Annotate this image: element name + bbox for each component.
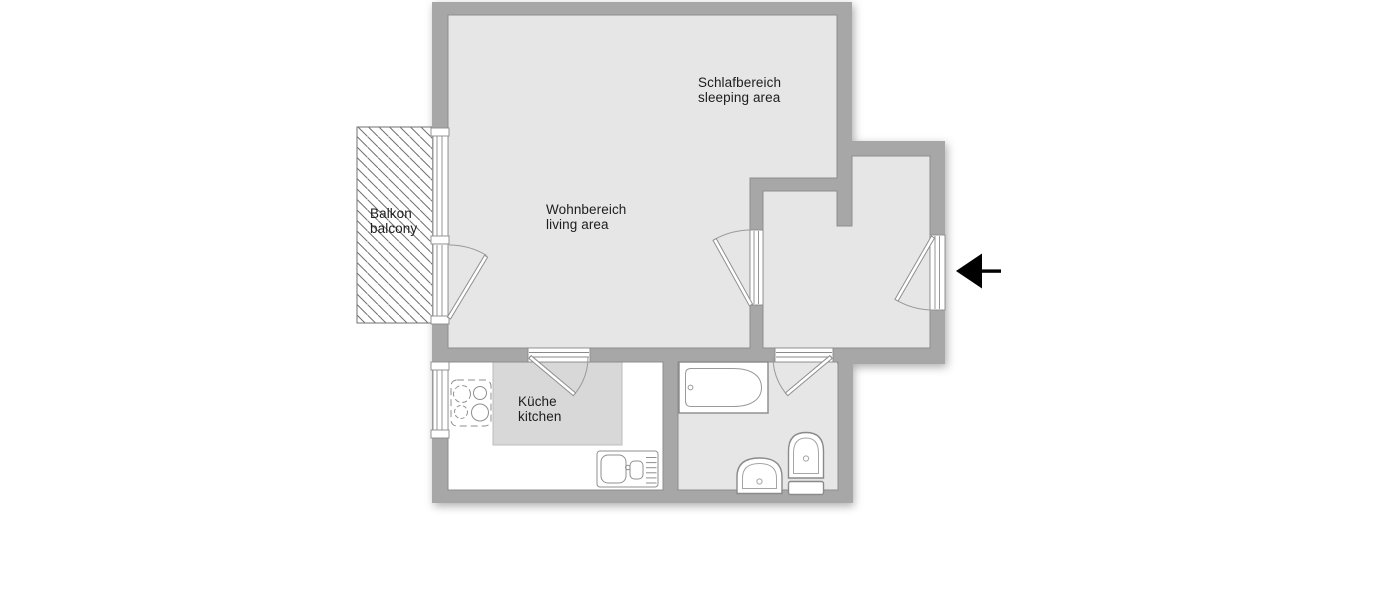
- sleeping-label-de: Schlafbereich: [698, 75, 781, 90]
- wall-mid-b: [590, 348, 775, 362]
- wall-hall-left-lower: [750, 305, 763, 362]
- washbasin-icon: [737, 458, 782, 494]
- label-balcony: Balkon balcony: [370, 206, 417, 236]
- label-living-area: Wohnbereich living area: [546, 202, 626, 232]
- label-kitchen: Küche kitchen: [518, 394, 561, 424]
- wall-hall-bottom: [837, 348, 945, 364]
- wall-hall-top: [837, 141, 945, 156]
- living-label-en: living area: [546, 217, 626, 232]
- kitchen-window: [431, 362, 449, 438]
- bathtub-icon: [679, 362, 768, 413]
- toilet-icon: [789, 433, 824, 495]
- balcony-label-en: balcony: [370, 221, 417, 236]
- balcony-window: [431, 128, 449, 244]
- floor-plan-canvas: Schlafbereich sleeping area Wohnbereich …: [0, 0, 1400, 600]
- wall-top: [432, 2, 852, 15]
- wall-stub: [750, 178, 852, 191]
- kitchen-door-opening: [528, 348, 590, 362]
- wall-bath-right: [838, 348, 853, 503]
- kitchen-label-en: kitchen: [518, 409, 561, 424]
- entry-door-opening: [930, 235, 945, 310]
- living-label-de: Wohnbereich: [546, 202, 626, 217]
- sleeping-label-en: sleeping area: [698, 90, 781, 105]
- wall-mid-a: [448, 348, 528, 362]
- entrance-arrow-icon: [956, 254, 1001, 289]
- balcony-door-glazing: [431, 244, 449, 324]
- wall-right-upper: [837, 2, 852, 226]
- kitchen-label-de: Küche: [518, 394, 561, 409]
- windows: [431, 128, 449, 438]
- wall-kitchen-bath: [663, 362, 678, 490]
- hall-door-opening: [750, 230, 763, 305]
- balcony-label-de: Balkon: [370, 206, 417, 221]
- label-sleeping-area: Schlafbereich sleeping area: [698, 75, 781, 105]
- wall-mid-c: [833, 348, 853, 362]
